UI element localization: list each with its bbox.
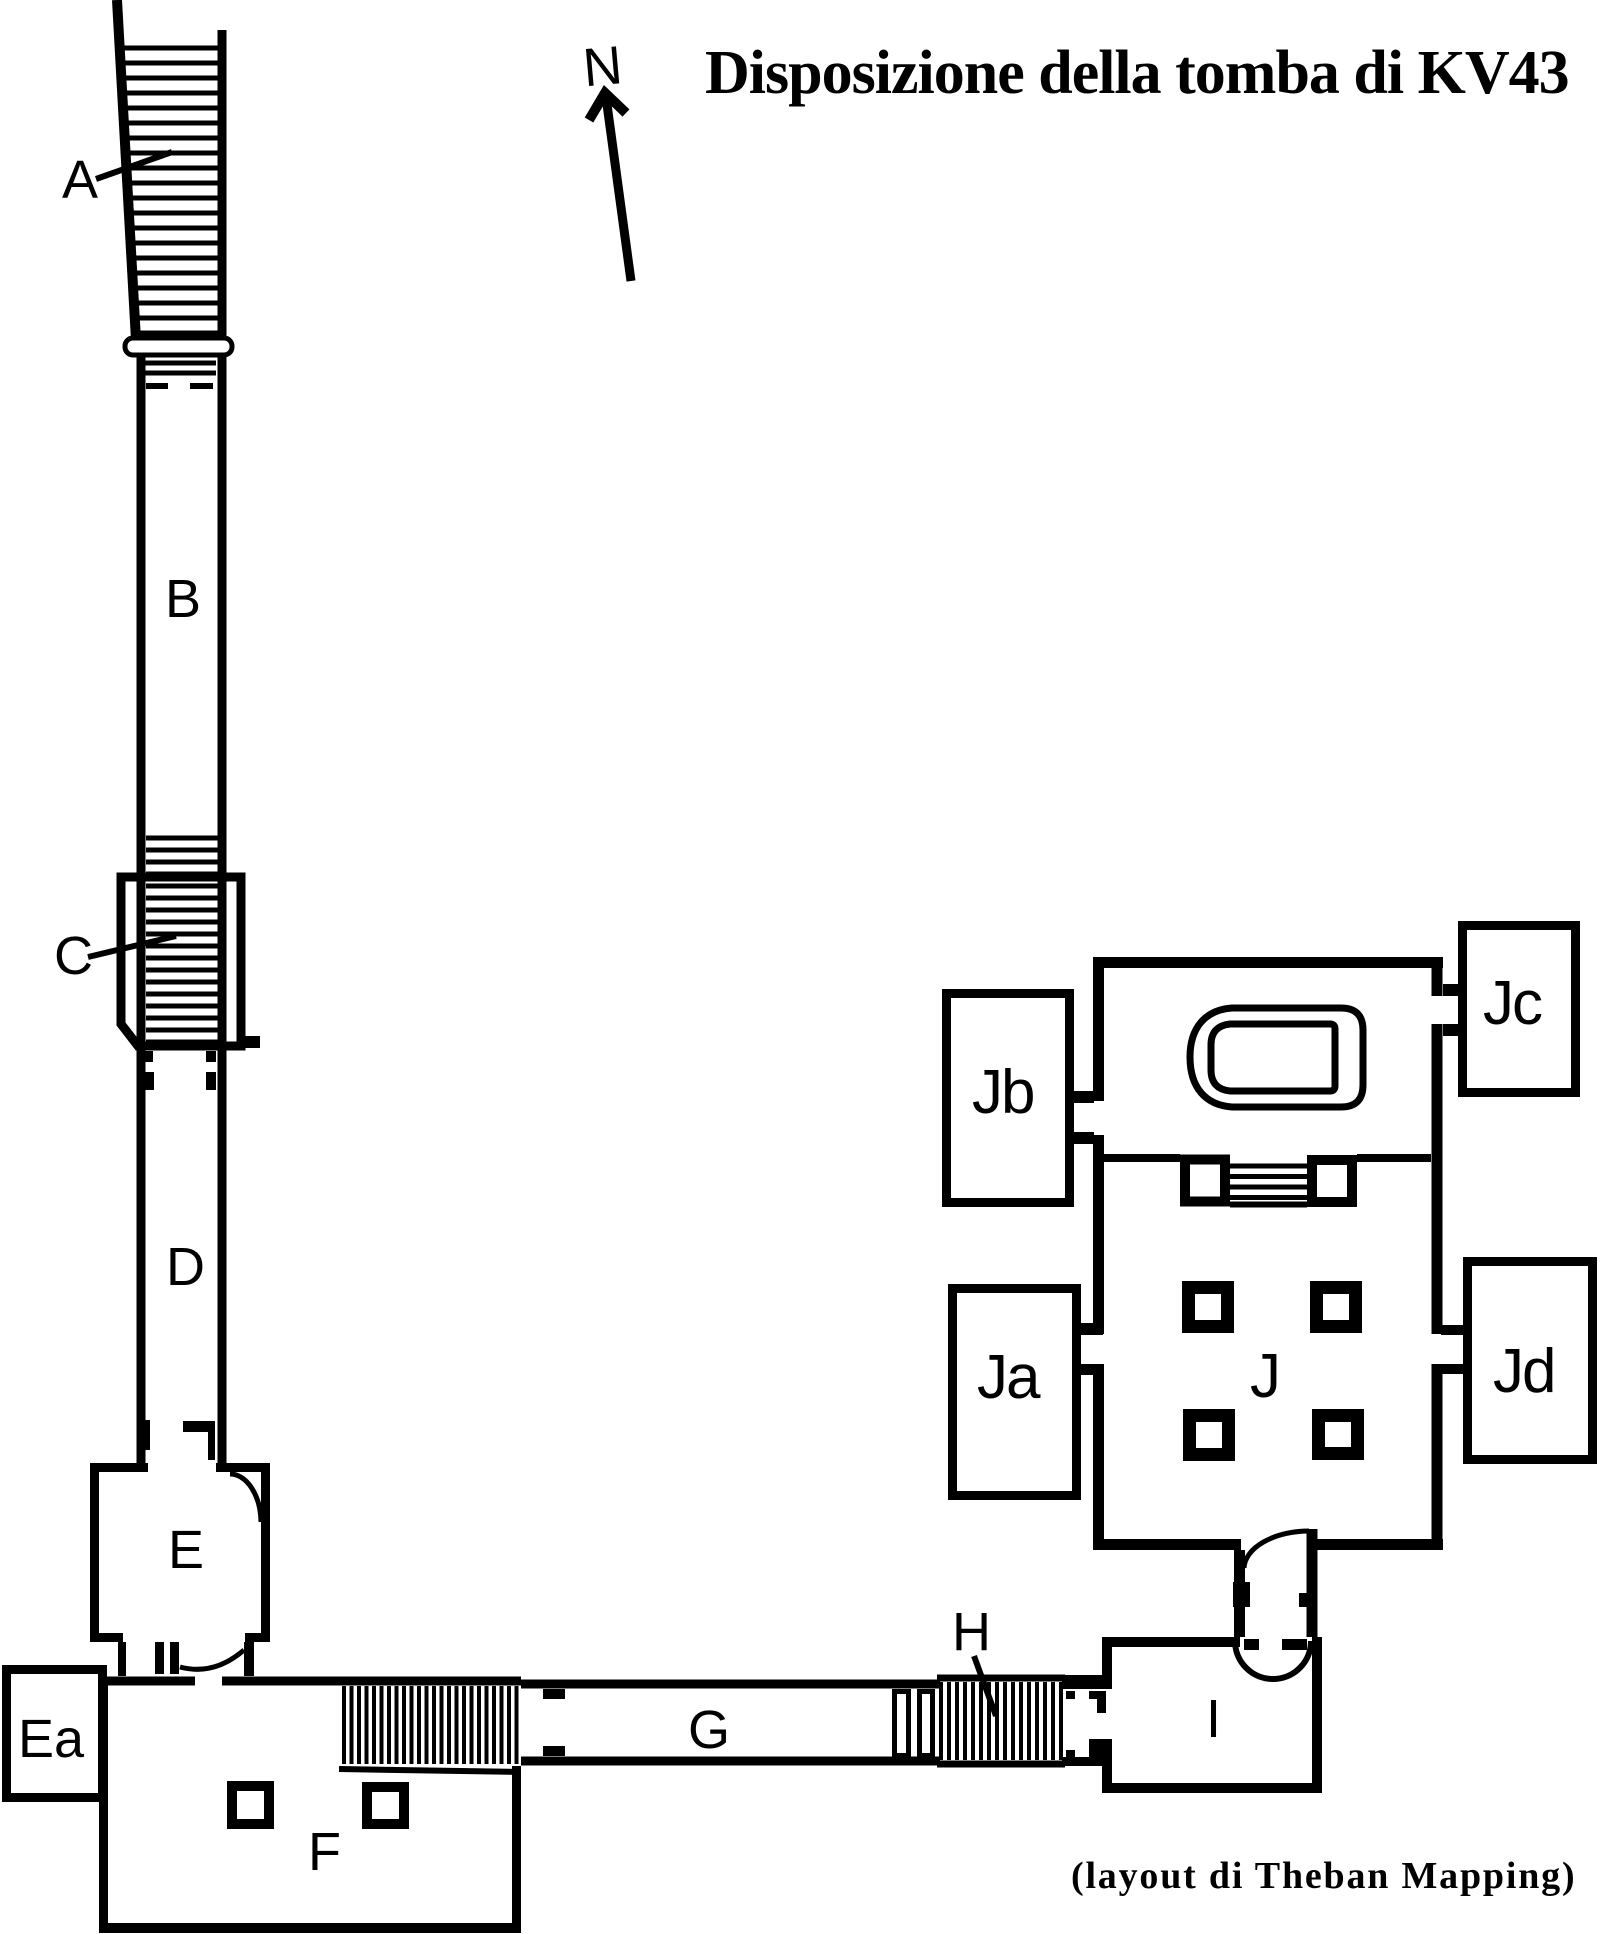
svg-text:E: E (168, 1520, 204, 1580)
svg-text:N: N (581, 35, 625, 98)
svg-text:C: C (54, 926, 93, 986)
svg-text:Jc: Jc (1483, 969, 1542, 1038)
svg-text:(layout di Theban Mapping): (layout di Theban Mapping) (1071, 1855, 1576, 1897)
svg-text:J: J (1250, 1342, 1281, 1411)
svg-text:B: B (165, 569, 201, 629)
svg-text:H: H (952, 1602, 991, 1662)
svg-text:Ja: Ja (977, 1343, 1041, 1412)
svg-text:Jd: Jd (1493, 1337, 1554, 1406)
svg-text:I: I (1206, 1689, 1221, 1749)
svg-text:Disposizione della tomba di KV: Disposizione della tomba di KV43 (705, 39, 1569, 107)
svg-text:D: D (166, 1237, 205, 1297)
svg-text:Ea: Ea (18, 1709, 85, 1769)
svg-text:G: G (688, 1700, 730, 1760)
svg-text:F: F (308, 1822, 341, 1882)
svg-text:Jb: Jb (972, 1058, 1033, 1127)
svg-text:A: A (62, 150, 98, 210)
